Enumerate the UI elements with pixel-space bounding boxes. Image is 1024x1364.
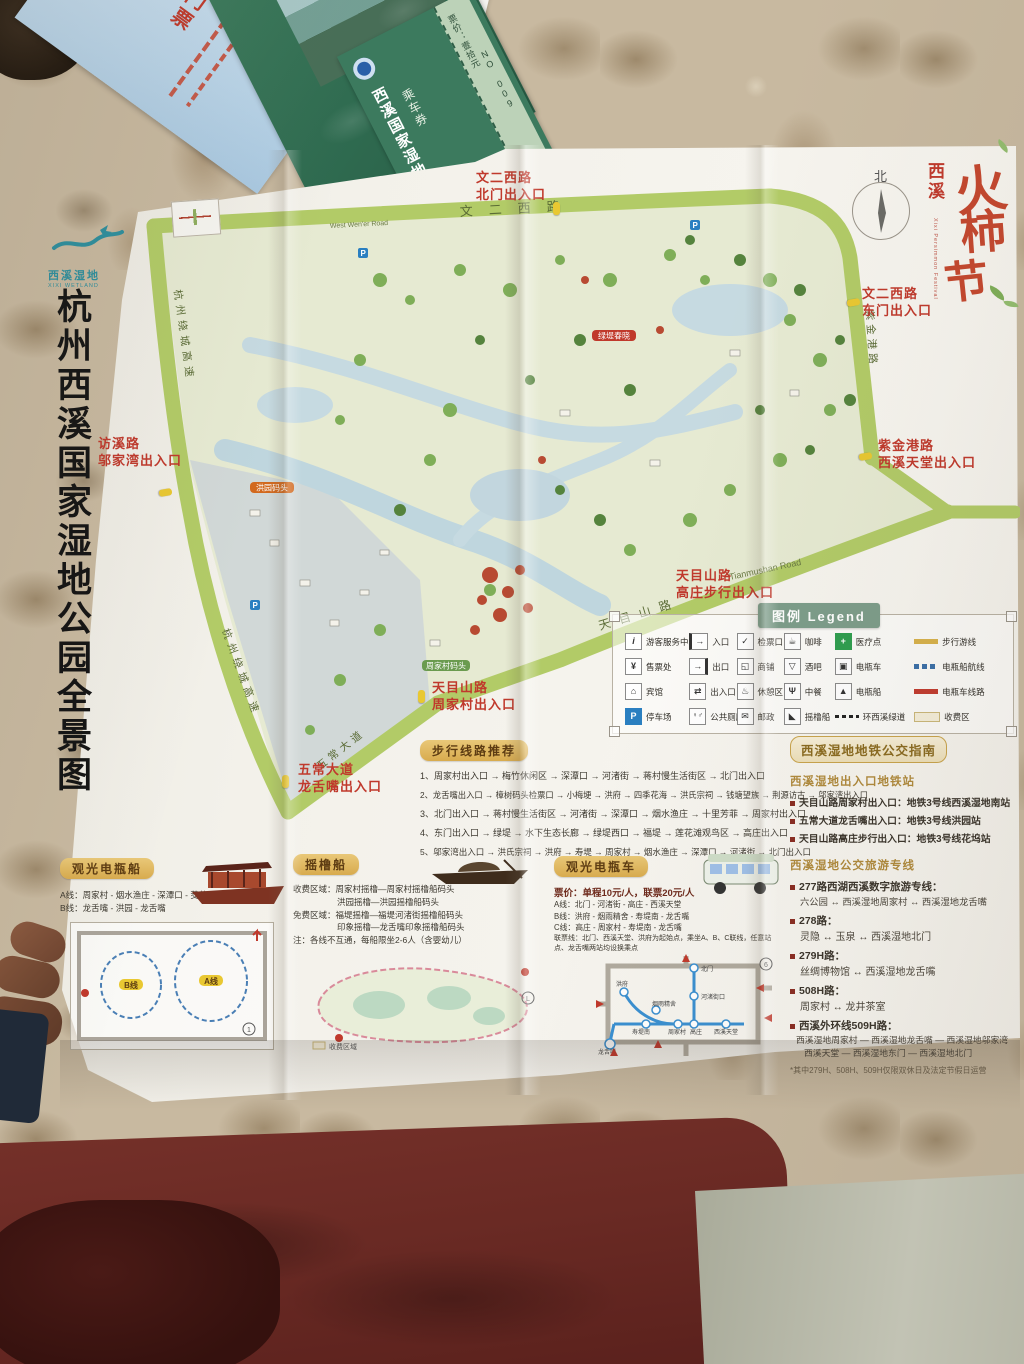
legend-item: ⇄出入口 bbox=[689, 683, 736, 700]
legend-item: ♨休憩区 bbox=[737, 683, 784, 700]
legend-item: +医疗点 bbox=[835, 633, 914, 650]
bullet-icon bbox=[790, 989, 795, 994]
xixi-logo-en: XIXI WETLAND bbox=[48, 283, 126, 289]
inset-minimap bbox=[171, 198, 221, 237]
svg-text:1: 1 bbox=[247, 1027, 251, 1034]
metro-item: 五常大道龙舌嘴出入口：地铁3号线洪园站 bbox=[790, 813, 1016, 827]
legend-grid: i游客服务中心 →入口 ✓检票口 ☕咖啡 +医疗点 步行游线 ¥售票处 →出口 … bbox=[625, 629, 1003, 729]
legend-item: ▽酒吧 bbox=[784, 658, 835, 675]
festival-leaf2 bbox=[1003, 299, 1018, 309]
festival-en: Xixi Persimmon Festival bbox=[932, 218, 938, 300]
transit-title: 西溪湿地地铁公交指南 bbox=[790, 736, 947, 763]
walking-route: 2、龙舌嘴出入口 → 樟树码头检票口 → 小梅埂 → 洪府 → 四季花海 → 洪… bbox=[420, 786, 778, 805]
green-ticket-logo bbox=[349, 54, 379, 84]
svg-text:西溪天堂: 西溪天堂 bbox=[714, 1028, 738, 1036]
bus-subtitle: 西溪湿地公交旅游专线 bbox=[790, 857, 1016, 873]
legend-title: 图例 Legend bbox=[758, 603, 880, 628]
cart-line-b: B线：洪府 - 烟雨精舍 - 寿堤南 - 龙舌嘴 bbox=[554, 911, 780, 923]
svg-text:绿堤春晓: 绿堤春晓 bbox=[598, 331, 630, 341]
svg-text:北门: 北门 bbox=[701, 965, 713, 973]
exit-icon: → bbox=[689, 658, 708, 675]
entrance-wujiawan: 访溪路邬家湾出入口 bbox=[98, 436, 182, 470]
bus-item-body: 周家村 ↔ 龙井茶室 bbox=[800, 998, 1016, 1013]
bullet-icon bbox=[790, 801, 795, 806]
walking-route: 1、周家村出入口 → 梅竹休闲区 → 深潭口 → 河渚街 → 蒋村慢生活街区 →… bbox=[420, 767, 778, 786]
legend-item: ✉邮政 bbox=[737, 708, 784, 725]
legend-box: 图例 Legend i游客服务中心 →入口 ✓检票口 ☕咖啡 +医疗点 步行游线… bbox=[612, 614, 1014, 734]
legend-item: ✓检票口 bbox=[737, 633, 784, 650]
svg-text:A线: A线 bbox=[204, 976, 218, 986]
svg-text:B线: B线 bbox=[124, 980, 138, 990]
svg-text:P: P bbox=[253, 601, 259, 610]
entrance-north-gate: 文二西路北门出入口 bbox=[476, 170, 546, 204]
compass-circle bbox=[852, 182, 910, 240]
rowing-free1: 免费区域：福堤摇橹—福堤河渚街摇橹船码头 bbox=[293, 909, 543, 922]
entrance-icon: → bbox=[689, 633, 708, 650]
xixi-logo-mark bbox=[48, 222, 126, 262]
metro-subtitle: 西溪湿地出入口地铁站 bbox=[790, 773, 1016, 789]
sleeve bbox=[0, 1008, 50, 1124]
bus-item-head: 西溪外环线509H路： bbox=[790, 1018, 1016, 1033]
info-icon: i bbox=[625, 633, 642, 650]
chinese-food-icon: Ψ bbox=[784, 683, 801, 700]
dark-knee bbox=[0, 1200, 280, 1364]
xixi-logo: 西溪湿地 XIXI WETLAND bbox=[48, 222, 126, 284]
bus-item-body: 丝绸博物馆 ↔ 西溪湿地龙舌嘴 bbox=[800, 963, 1016, 978]
rowing-note: 注：各线不互通，每船限坐2-6人（含婴幼儿） bbox=[293, 934, 543, 947]
legend-item: 电瓶车线路 bbox=[914, 686, 1003, 698]
svg-text:高庄: 高庄 bbox=[690, 1028, 702, 1036]
legend-corner bbox=[609, 611, 620, 622]
blue-ticket-text: 门票 bbox=[161, 0, 213, 37]
shop-icon: ◱ bbox=[737, 658, 754, 675]
metro-item: 天目山路周家村出入口：地铁3号线西溪湿地南站 bbox=[790, 795, 1016, 809]
bus-item-head: 277路西湖西溪数字旅游专线： bbox=[790, 879, 1016, 894]
legend-item: ▣电瓶车 bbox=[835, 658, 914, 675]
map-title: 杭州西溪国家湿地公园全景图 bbox=[46, 288, 97, 800]
post-icon: ✉ bbox=[737, 708, 754, 725]
fee-area-swatch bbox=[914, 712, 940, 722]
greenway-line bbox=[835, 715, 859, 718]
map-bottom-shadow bbox=[60, 1040, 1020, 1110]
legend-item: →入口 bbox=[689, 633, 736, 650]
svg-text:P: P bbox=[361, 249, 367, 258]
legend-item: ¥售票处 bbox=[625, 658, 689, 675]
transit-guide-panel: 西溪湿地地铁公交指南 西溪湿地出入口地铁站 天目山路周家村出入口：地铁3号线西溪… bbox=[790, 736, 1016, 1036]
compass: 北 bbox=[846, 168, 918, 240]
boat-route-line bbox=[914, 664, 938, 669]
svg-text:寿堤南: 寿堤南 bbox=[632, 1028, 650, 1036]
legend-item: ▲电瓶船 bbox=[835, 683, 914, 700]
legend-item: ◱商铺 bbox=[737, 658, 784, 675]
rowing-boat-title: 摇橹船 bbox=[293, 854, 359, 875]
legend-item: 步行游线 bbox=[914, 636, 1003, 648]
toilet-icon: ♀♂ bbox=[689, 708, 706, 725]
entrance-east-gate: 文二西路东门出入口 bbox=[862, 286, 932, 320]
walking-route: 3、北门出入口 → 蒋村慢生活街区 → 河渚街 → 深潭口 → 烟水渔庄 → 十… bbox=[420, 805, 778, 824]
entrance-longshezui-pin bbox=[282, 775, 289, 788]
bullet-icon bbox=[790, 1024, 795, 1029]
bus-item-head: 508H路： bbox=[790, 983, 1016, 998]
cart-route-line bbox=[914, 689, 938, 694]
legend-item: ◣摇橹船 bbox=[784, 708, 835, 725]
electric-boat-icon: ▲ bbox=[835, 683, 852, 700]
entrance-zhoujiacun: 天目山路周家村出入口 bbox=[432, 680, 516, 714]
bus-item-body: 灵隐 ↔ 玉泉 ↔ 西溪湿地北门 bbox=[800, 928, 1016, 943]
legend-item: ☕咖啡 bbox=[784, 633, 835, 650]
svg-text:P: P bbox=[693, 221, 699, 230]
entrance-gaozhuang: 天目山路高庄步行出入口 bbox=[676, 568, 774, 602]
svg-text:河渚街口: 河渚街口 bbox=[701, 993, 725, 1001]
walk-route-line bbox=[914, 639, 938, 644]
entrance-zhoujiacun-pin bbox=[418, 690, 425, 703]
svg-text:周家村: 周家村 bbox=[668, 1028, 686, 1036]
electric-cart-illustration bbox=[700, 850, 782, 896]
legend-item: ⌂宾馆 bbox=[625, 683, 689, 700]
entrance-paradise: 紫金港路西溪天堂出入口 bbox=[878, 438, 976, 472]
bus-item-head: 278路： bbox=[790, 913, 1016, 928]
bullet-icon bbox=[790, 919, 795, 924]
rowing-paid2: 洪园摇橹—洪园摇橹船码头 bbox=[337, 896, 543, 909]
cart-line-a: A线：北门 - 河渚街 - 高庄 - 西溪天堂 bbox=[554, 899, 780, 911]
electric-boat-title: 观光电瓶船 bbox=[60, 858, 154, 879]
walking-routes-title: 步行线路推荐 bbox=[420, 740, 528, 761]
svg-text:烟雨精舍: 烟雨精舍 bbox=[652, 1000, 676, 1008]
legend-item: →出口 bbox=[689, 658, 736, 675]
legend-item: i游客服务中心 bbox=[625, 633, 689, 650]
xixi-logo-name: 西溪湿地 bbox=[48, 267, 126, 283]
rowing-route-diagram: L 收费区域 bbox=[299, 950, 537, 1054]
electric-cart-icon: ▣ bbox=[835, 658, 852, 675]
floor-surface bbox=[695, 1173, 1024, 1364]
cart-line-c: C线：高庄 - 周家村 - 寿堤南 - 龙舌嘴 bbox=[554, 922, 780, 934]
svg-text:周家村码头: 周家村码头 bbox=[426, 661, 466, 671]
ticket-office-icon: ¥ bbox=[625, 658, 642, 675]
bus-item-head: 279H路： bbox=[790, 948, 1016, 963]
metro-item: 天目山路高庄步行出入口：地铁3号线花坞站 bbox=[790, 831, 1016, 845]
legend-corner bbox=[1006, 611, 1017, 622]
entrance-north-pin bbox=[553, 202, 560, 215]
electric-cart-title: 观光电瓶车 bbox=[554, 856, 648, 877]
bullet-icon bbox=[790, 954, 795, 959]
rowing-boat-illustration bbox=[430, 852, 530, 888]
bullet-icon bbox=[790, 885, 795, 890]
bullet-icon bbox=[790, 837, 795, 842]
walking-route: 4、东门出入口 → 绿堤 → 水下生态长廊 → 绿堤西口 → 福堤 → 莲花滩观… bbox=[420, 824, 778, 843]
bar-icon: ▽ bbox=[784, 658, 801, 675]
rowing-boat-icon: ◣ bbox=[784, 708, 801, 725]
svg-text:洪府: 洪府 bbox=[616, 980, 628, 988]
bus-item-body: 六公园 ↔ 西溪湿地周家村 ↔ 西溪湿地龙舌嘴 bbox=[800, 894, 1016, 908]
hotel-icon: ⌂ bbox=[625, 683, 642, 700]
entrance-longshezui: 五常大道龙舌嘴出入口 bbox=[298, 762, 382, 796]
coffee-icon: ☕ bbox=[784, 633, 801, 650]
legend-item: Ψ中餐 bbox=[784, 683, 835, 700]
festival-char3: 节 bbox=[941, 244, 991, 312]
bullet-icon bbox=[790, 819, 795, 824]
rowing-free2: 印象摇橹—龙舌嘴印象摇橹船码头 bbox=[337, 921, 543, 934]
festival-prefix: 西溪 bbox=[922, 162, 947, 202]
svg-text:洪园码头: 洪园码头 bbox=[256, 483, 288, 493]
legend-item: P停车场 bbox=[625, 708, 689, 725]
ticket-check-icon: ✓ bbox=[737, 633, 754, 650]
cart-joint-line: 联票线：北门、西溪天堂、洪府为起始点，乘坐A、B、C联线，任意站点、龙舌嘴两站均… bbox=[554, 934, 778, 953]
inset-roads bbox=[178, 208, 211, 226]
legend-corner bbox=[609, 726, 620, 737]
green-ticket-price: 票价：壹拾元 bbox=[445, 12, 484, 71]
electric-boat-illustration bbox=[188, 856, 288, 908]
svg-text:L: L bbox=[526, 996, 530, 1003]
svg-text:6: 6 bbox=[764, 962, 768, 969]
gate-icon: ⇄ bbox=[689, 683, 706, 700]
rest-area-icon: ♨ bbox=[737, 683, 754, 700]
legend-item: 环西溪绿道 bbox=[835, 711, 914, 723]
parking-icon: P bbox=[625, 708, 642, 725]
legend-item: ♀♂公共厕所 bbox=[689, 708, 736, 725]
legend-item: 收费区 bbox=[914, 711, 1003, 723]
legend-item: 电瓶船航线 bbox=[914, 661, 1003, 673]
photo-of-map: 门票 乘车券 西溪国家湿地公园 乘车券 票价：壹拾元 NO 009 bbox=[0, 0, 1024, 1364]
walking-routes-box: 步行线路推荐 1、周家村出入口 → 梅竹休闲区 → 深潭口 → 河渚街 → 蒋村… bbox=[420, 740, 778, 848]
medical-icon: + bbox=[835, 633, 852, 650]
